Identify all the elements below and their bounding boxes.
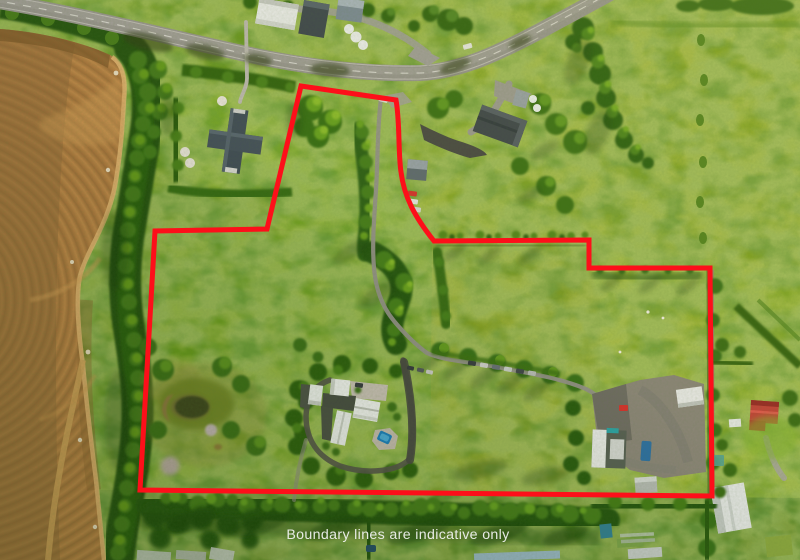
svg-text:Boundary lines are indicative: Boundary lines are indicative only [286,527,510,543]
